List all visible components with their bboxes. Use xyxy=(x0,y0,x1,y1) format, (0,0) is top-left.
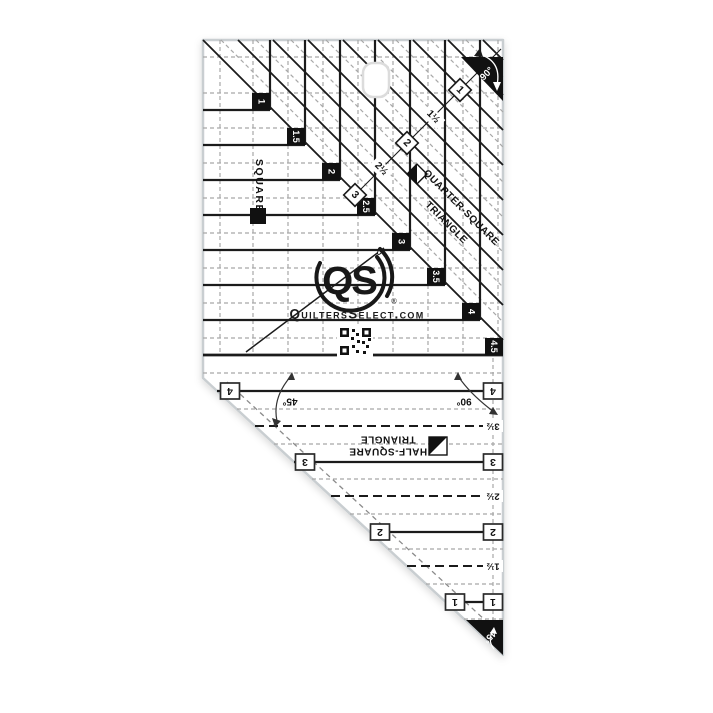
half-inch-label: 2½ xyxy=(486,491,499,502)
step-size-label: 3.5 xyxy=(431,270,441,283)
inch-size-label: 2 xyxy=(377,526,383,538)
inch-size-label: 3 xyxy=(302,456,308,468)
inch-size-label: 1 xyxy=(490,596,496,608)
step-size-label: 4 xyxy=(466,309,477,315)
inch-size-label: 4 xyxy=(227,385,233,397)
half-square-title-line2: TRIANGLE xyxy=(360,434,415,445)
step-size-label: 3 xyxy=(396,239,407,244)
half-square-legend: HALF-SQUARE TRIANGLE xyxy=(349,434,447,457)
step-size-label: 1 xyxy=(256,99,267,105)
square-icon xyxy=(250,208,266,224)
inch-size-label: 2 xyxy=(490,526,496,538)
inch-size-label: 1 xyxy=(452,596,458,608)
angle-90-label: 90° xyxy=(456,396,471,407)
product-photo: 90° 1 1.5 2 2.5 3 3.5 4 4.5 xyxy=(0,0,713,713)
half-square-title-line1: HALF-SQUARE xyxy=(349,446,427,457)
step-size-label: 2 xyxy=(326,169,337,174)
square-label: SQUARE xyxy=(253,159,265,213)
angle-45-label: 45° xyxy=(282,396,297,407)
inch-size-label: 4 xyxy=(490,385,496,397)
step-size-label: 2.5 xyxy=(361,200,371,213)
half-inch-label: 1½ xyxy=(486,561,499,572)
inch-size-label: 3 xyxy=(490,456,496,468)
step-size-label: 4.5 xyxy=(489,340,499,353)
website-url: QuiltersSelect.com xyxy=(290,307,425,322)
half-inch-label: 3½ xyxy=(486,421,499,432)
qr-code xyxy=(337,325,373,357)
qs-logo-text: QS xyxy=(322,259,377,303)
registered-mark: ® xyxy=(391,297,397,306)
half-square-triangle-icon xyxy=(429,437,447,455)
step-size-label: 1.5 xyxy=(291,130,301,143)
hang-hole xyxy=(363,63,389,97)
ruler-illustration: 90° 1 1.5 2 2.5 3 3.5 4 4.5 xyxy=(0,0,713,713)
